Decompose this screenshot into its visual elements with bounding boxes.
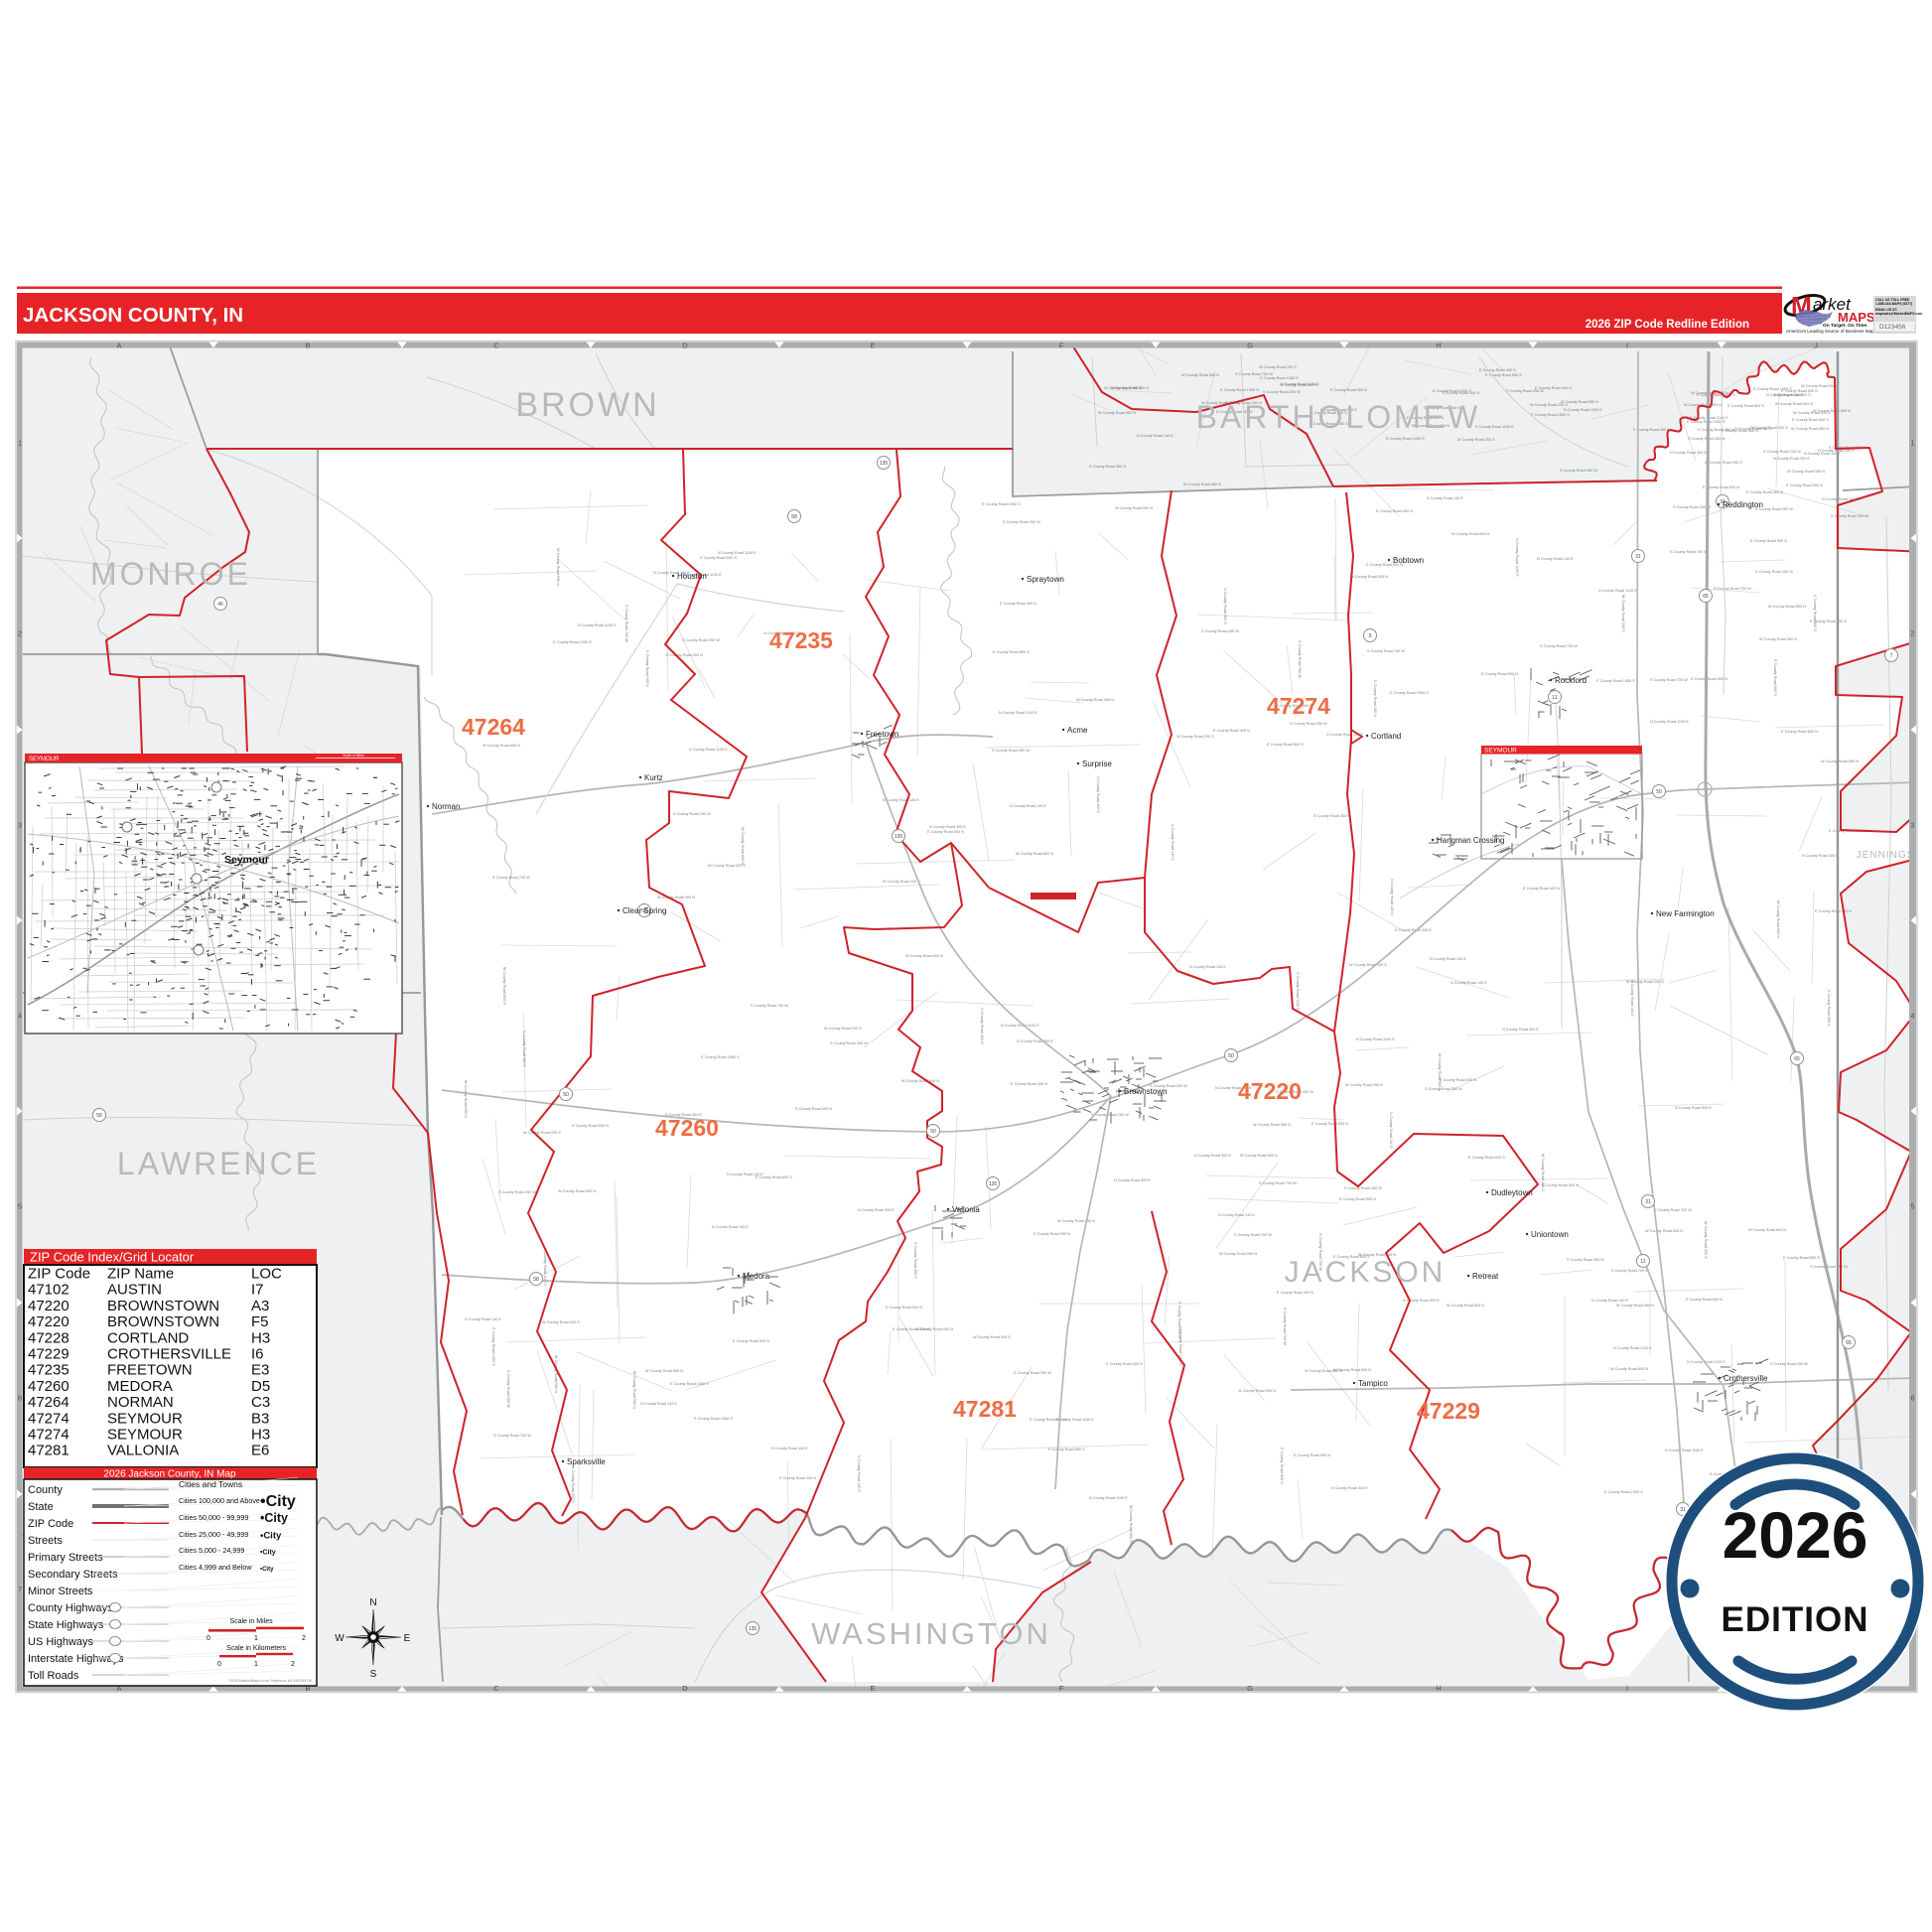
svg-text:N County Road 300 E: N County Road 300 E [1670,451,1707,455]
svg-text:47274: 47274 [28,1427,69,1444]
svg-text:2026: 2026 [1723,1498,1868,1572]
svg-text:CORTLAND: CORTLAND [107,1329,189,1346]
svg-text:2: 2 [291,1661,295,1668]
svg-text:F: F [1059,342,1064,350]
svg-text:CROTHERSVILLE: CROTHERSVILLE [107,1346,231,1363]
svg-text:W County Road 950 N: W County Road 950 N [1057,1219,1095,1223]
svg-text:Rockford: Rockford [1555,676,1587,685]
svg-text:NORMAN: NORMAN [107,1394,174,1411]
svg-text:MAPS: MAPS [1838,310,1875,325]
svg-text:W County Road 950 N: W County Road 950 N [1345,1083,1383,1087]
svg-text:E County Road 500 N: E County Road 500 N [1542,1183,1579,1187]
svg-text:50: 50 [930,1129,936,1135]
svg-text:50: 50 [1228,1053,1234,1059]
svg-text:WASHINGTON: WASHINGTON [811,1616,1051,1651]
svg-text:S County Road 250 W: S County Road 250 W [1344,1186,1382,1190]
svg-text:31: 31 [1645,1199,1651,1205]
svg-text:E County Road 800 S: E County Road 800 S [1792,418,1829,422]
svg-text:E County Road 800 S: E County Road 800 S [1773,659,1777,696]
svg-text:W County Road 200 S: W County Road 200 S [1541,1154,1545,1191]
svg-text:W County Road 950 N: W County Road 950 N [1115,506,1153,510]
svg-text:50: 50 [563,1092,569,1098]
svg-text:Primary Streets: Primary Streets [28,1552,103,1564]
svg-text:E County Road 500 N: E County Road 500 N [1686,1298,1723,1302]
svg-text:N County Road 1100 E: N County Road 1100 E [1515,538,1519,577]
svg-text:E County Road 500 N: E County Road 500 N [1691,677,1727,681]
svg-text:W County Road 200 S: W County Road 200 S [824,1027,862,1031]
svg-text:N County Road 140 E: N County Road 140 E [1430,957,1466,961]
svg-text:2: 2 [1910,629,1914,638]
svg-text:E County Road 800 S: E County Road 800 S [1048,1448,1085,1451]
svg-text:Retreat: Retreat [1472,1272,1499,1281]
svg-text:S County Road 700 W: S County Road 700 W [492,876,530,880]
svg-text:BROWNSTOWN: BROWNSTOWN [107,1313,219,1330]
svg-text:65: 65 [1846,1340,1852,1346]
svg-text:S County Road 250 W: S County Road 250 W [830,1041,868,1045]
svg-text:E County Road 1050 S: E County Road 1050 S [1386,437,1425,441]
svg-text:N County Road 1100 E: N County Road 1100 E [1296,972,1300,1011]
svg-text:W County Road 200 S: W County Road 200 S [542,1320,580,1324]
svg-text:E County Road 400 N: E County Road 400 N [1106,1362,1143,1366]
svg-text:E County Road 400 N: E County Road 400 N [779,1476,816,1480]
svg-text:58: 58 [533,1277,539,1283]
svg-text:Cities 4,999 and Below: Cities 4,999 and Below [179,1563,252,1572]
svg-text:E County Road 1050 S: E County Road 1050 S [701,1055,740,1059]
svg-text:JENNINGS: JENNINGS [1857,850,1915,861]
svg-text:E County Road 1050 S: E County Road 1050 S [1604,1490,1643,1494]
svg-text:N County Road 140 E: N County Road 140 E [1427,496,1463,500]
svg-text:N County Road 140 E: N County Road 140 E [1591,1299,1628,1303]
svg-text:Dudleytown: Dudleytown [1491,1188,1533,1197]
svg-text:N County Road 300 E: N County Road 300 E [1802,854,1839,858]
svg-text:E County Road 1050 S: E County Road 1050 S [1531,413,1570,417]
svg-text:E County Road 800 S: E County Road 800 S [1783,1256,1820,1260]
svg-text:W County Road 600 N: W County Road 600 N [1240,1154,1278,1158]
svg-text:W County Road 950 N: W County Road 950 N [657,896,695,899]
svg-text:N County Road 300 E: N County Road 300 E [1223,588,1227,624]
svg-text:SEYMOUR: SEYMOUR [29,757,60,762]
svg-text:W County Road 600 N: W County Road 600 N [558,1189,596,1193]
svg-text:N County Road 300 E: N County Road 300 E [1502,1028,1539,1032]
svg-text:Brownstown: Brownstown [1124,1087,1168,1096]
svg-text:W County Road 950 N: W County Road 950 N [1238,1389,1276,1393]
svg-text:C3: C3 [251,1394,270,1411]
svg-text:W County Road 200 S: W County Road 200 S [571,1465,575,1503]
svg-text:W County Road 950 N: W County Road 950 N [1561,400,1598,404]
svg-text:E County Road 500 N: E County Road 500 N [1815,909,1852,913]
svg-text:S County Road 250 W: S County Road 250 W [1201,629,1239,633]
svg-text:E County Road 400 N: E County Road 400 N [1373,680,1377,717]
svg-text:BARTHOLOMEW: BARTHOLOMEW [1196,399,1481,435]
svg-text:4: 4 [18,1012,22,1021]
svg-text:Sparksville: Sparksville [567,1457,606,1466]
svg-text:N County Road 1100 E: N County Road 1100 E [689,748,728,752]
svg-text:A3: A3 [251,1298,269,1314]
svg-text:E County Road 1050 S: E County Road 1050 S [1596,679,1635,683]
svg-text:N County Road 140 E: N County Road 140 E [1735,427,1772,431]
svg-text:47281: 47281 [953,1396,1017,1422]
svg-text:S County Road 250 W: S County Road 250 W [1831,514,1868,518]
svg-text:S County Road 250 W: S County Road 250 W [1810,1265,1848,1269]
svg-text:ZIP Name: ZIP Name [107,1266,174,1283]
svg-text:58: 58 [791,514,797,520]
svg-text:E County Road 500 N: E County Road 500 N [1781,730,1818,734]
svg-text:47220: 47220 [28,1298,69,1314]
svg-text:N County Road 300 E: N County Road 300 E [1114,1178,1151,1182]
svg-text:W County Road 600 N: W County Road 600 N [502,967,506,1005]
svg-text:E County Road 800 S: E County Road 800 S [993,650,1030,654]
svg-text:N County Road 1100 E: N County Road 1100 E [999,711,1037,715]
svg-text:N County Road 300 E: N County Road 300 E [1313,814,1350,818]
svg-text:W County Road 600 N: W County Road 600 N [1776,900,1780,938]
svg-text:7: 7 [1890,653,1893,659]
svg-text:N County Road 1100 E: N County Road 1100 E [1089,1496,1128,1500]
svg-text:D: D [682,342,688,350]
svg-text:E County Road 1050 S: E County Road 1050 S [670,1382,709,1386]
svg-text:W County Road 950 N: W County Road 950 N [632,1371,636,1409]
svg-text:135: 135 [989,1181,998,1187]
svg-text:W County Road 600 N: W County Road 600 N [741,827,745,865]
svg-text:E County Road 400 N: E County Road 400 N [645,650,649,687]
svg-text:47281: 47281 [28,1443,69,1459]
svg-text:C: C [493,1684,499,1693]
svg-text:S County Road 250 W: S County Road 250 W [1263,390,1301,394]
svg-text:D: D [682,1684,688,1693]
svg-text:N County Road 1100 E: N County Road 1100 E [1475,425,1514,429]
svg-text:FREETOWN: FREETOWN [107,1362,193,1379]
svg-text:N County Road 140 E: N County Road 140 E [1010,804,1046,808]
svg-text:S County Road 700 W: S County Road 700 W [751,1004,788,1008]
svg-text:N County Road 300 E: N County Road 300 E [913,1242,917,1279]
svg-text:Cities 25,000 - 49,999: Cities 25,000 - 49,999 [179,1530,248,1539]
svg-text:Reddington: Reddington [1723,500,1763,509]
svg-text:N County Road 140 E: N County Road 140 E [1171,824,1174,861]
svg-text:E County Road 800 S: E County Road 800 S [1267,743,1304,747]
svg-text:N County Road 1100 E: N County Road 1100 E [1564,408,1602,412]
svg-text:VALLONIA: VALLONIA [107,1443,179,1459]
svg-text:E County Road 500 N: E County Road 500 N [572,1124,609,1128]
svg-text:•City: •City [260,1531,282,1542]
svg-text:W County Road 600 N: W County Road 600 N [1775,402,1813,406]
svg-text:W County Road 200 S: W County Road 200 S [1176,735,1214,739]
svg-text:4: 4 [1910,1012,1914,1021]
svg-text:S County Road 250 W: S County Road 250 W [992,749,1030,753]
svg-text:Kurtz: Kurtz [644,773,663,782]
svg-text:H3: H3 [251,1427,270,1444]
svg-text:N County Road 140 E: N County Road 140 E [857,1455,861,1492]
svg-text:1: 1 [254,1661,258,1668]
svg-text:SEYMOUR: SEYMOUR [107,1427,183,1444]
svg-text:S County Road 250 W: S County Road 250 W [673,812,711,816]
svg-text:N County Road 300 E: N County Road 300 E [1096,776,1100,813]
svg-text:3: 3 [1910,821,1914,830]
svg-text:E County Road 1050 S: E County Road 1050 S [1390,691,1429,695]
svg-text:Cities 100,000 and Above: Cities 100,000 and Above [179,1496,260,1505]
svg-text:S County Road 250 W: S County Road 250 W [1698,428,1735,432]
svg-text:50: 50 [1656,789,1662,795]
svg-text:C: C [493,342,499,350]
svg-text:E County Road 400 N: E County Road 400 N [1535,386,1572,390]
svg-text:E County Road 400 N: E County Road 400 N [1000,602,1036,606]
svg-text:W County Road 600 N: W County Road 600 N [1016,852,1053,856]
svg-text:47235: 47235 [28,1362,69,1379]
svg-text:N County Road 300 E: N County Road 300 E [1773,457,1810,461]
svg-text:6: 6 [18,1394,22,1403]
svg-text:S: S [370,1669,377,1680]
svg-text:Uniontown: Uniontown [1531,1230,1569,1239]
svg-text:W County Road 950 N: W County Road 950 N [1098,411,1136,415]
svg-text:E County Road 500 N: E County Road 500 N [795,1107,832,1111]
svg-text:1: 1 [18,439,22,448]
svg-text:N County Road 300 E: N County Road 300 E [858,1208,895,1212]
svg-text:2026 MarketMaps.com Seymour, I: 2026 MarketMaps.com Seymour, IN 4SEM47M [228,1678,312,1683]
svg-text:E County Road 500 N: E County Road 500 N [886,1306,922,1310]
svg-text:F5: F5 [251,1313,269,1330]
svg-text:E: E [870,1684,875,1693]
svg-text:US Highways: US Highways [28,1636,94,1648]
svg-text:N County Road 140 E: N County Road 140 E [727,1173,763,1176]
svg-text:E County Road 500 N: E County Road 500 N [1786,483,1823,487]
svg-text:E County Road 1050 S: E County Road 1050 S [553,640,592,644]
svg-text:I7: I7 [251,1282,264,1299]
svg-text:S County Road 250 W: S County Road 250 W [1425,1087,1462,1091]
svg-text:N County Road 140 E: N County Road 140 E [1137,434,1173,438]
svg-text:MEDORA: MEDORA [107,1378,173,1395]
svg-text:5: 5 [18,1202,22,1211]
svg-text:Secondary Streets: Secondary Streets [28,1569,118,1581]
svg-text:LOC: LOC [251,1266,282,1283]
svg-text:W County Road 600 N: W County Road 600 N [1451,532,1489,536]
svg-text:I: I [1626,1684,1628,1693]
svg-text:Toll Roads: Toll Roads [28,1670,79,1682]
svg-text:47264: 47264 [28,1394,69,1411]
svg-text:7: 7 [18,1586,22,1594]
svg-text:W County Road 950 N: W County Road 950 N [1076,698,1114,702]
svg-text:W County Road 950 N: W County Road 950 N [1801,384,1839,388]
svg-text:W County Road 200 S: W County Road 200 S [1129,1505,1133,1543]
svg-text:S County Road 700 W: S County Road 700 W [1763,450,1801,454]
svg-text:W County Road 950 N: W County Road 950 N [464,1080,468,1118]
svg-text:BROWNSTOWN: BROWNSTOWN [107,1298,219,1314]
svg-text:W County Road 950 N: W County Road 950 N [1219,1252,1257,1256]
svg-text:W County Road 600 N: W County Road 600 N [1645,1229,1683,1233]
svg-text:S County Road 250 W: S County Road 250 W [1290,722,1327,726]
svg-text:N County Road 140 E: N County Road 140 E [771,1447,808,1450]
svg-text:mapsales@MarketMAPS.com: mapsales@MarketMAPS.com [1875,312,1922,316]
svg-text:N County Road 300 E: N County Road 300 E [1675,1106,1712,1110]
svg-text:135: 135 [895,834,903,840]
svg-text:County: County [28,1484,63,1496]
svg-text:2026 ZIP Code Redline Edition: 2026 ZIP Code Redline Edition [1586,319,1749,331]
svg-text:S County Road 250 W: S County Road 250 W [1673,505,1711,509]
svg-text:W County Road 200 S: W County Road 200 S [1104,386,1142,390]
svg-text:AUSTIN: AUSTIN [107,1282,162,1299]
svg-text:47274: 47274 [28,1410,69,1427]
svg-text:E County Road 500 N: E County Road 500 N [1781,389,1818,393]
svg-text:S County Road 700 W: S County Road 700 W [1611,1269,1649,1273]
svg-text:47260: 47260 [655,1115,719,1141]
svg-text:W County Road 600 N: W County Road 600 N [1768,605,1806,609]
svg-text:9: 9 [1369,633,1372,639]
svg-text:E County Road 500 N: E County Road 500 N [1827,990,1831,1027]
svg-text:Medora: Medora [743,1272,770,1281]
svg-text:S County Road 700 W: S County Road 700 W [1540,644,1578,648]
svg-text:S County Road 700 W: S County Road 700 W [1283,1308,1287,1345]
svg-text:E County Road 500 N: E County Road 500 N [927,830,964,834]
svg-text:E6: E6 [251,1443,269,1459]
svg-text:G: G [1247,342,1253,350]
svg-text:Minor Streets: Minor Streets [28,1586,93,1597]
svg-text:0: 0 [217,1661,221,1668]
svg-text:W County Road 200 S: W County Road 200 S [1621,595,1625,632]
svg-text:E County Road 800 S: E County Road 800 S [1813,595,1817,631]
svg-text:N County Road 140 E: N County Road 140 E [712,1225,749,1229]
svg-text:JACKSON COUNTY, IN: JACKSON COUNTY, IN [23,304,243,327]
svg-text:E County Road 500 N: E County Road 500 N [1440,1078,1476,1082]
svg-text:Bobtown: Bobtown [1393,556,1424,565]
svg-text:B3: B3 [251,1410,269,1427]
svg-text:0: 0 [207,1635,210,1642]
svg-text:E County Road 1050 S: E County Road 1050 S [1687,420,1725,424]
svg-text:Cortland: Cortland [1371,732,1401,741]
svg-text:Streets: Streets [28,1535,63,1547]
svg-text:N County Road 140 E: N County Road 140 E [1537,557,1574,561]
svg-text:W County Road 600 N: W County Road 600 N [905,954,943,958]
svg-text:W County Road 950 N: W County Road 950 N [1350,575,1388,579]
svg-text:W County Road 600 N: W County Road 600 N [1280,383,1317,387]
svg-text:N: N [369,1597,376,1608]
svg-text:E County Road 400 N: E County Road 400 N [1277,1291,1313,1295]
svg-text:ZIP Code: ZIP Code [28,1518,73,1530]
svg-text:E County Road 500 N: E County Road 500 N [1034,1232,1070,1236]
svg-text:W County Road 200 S: W County Road 200 S [1457,438,1495,442]
svg-text:135: 135 [880,461,889,467]
svg-text:E County Road 800 S: E County Road 800 S [1468,1156,1505,1160]
svg-text:2: 2 [302,1635,306,1642]
svg-text:E County Road 500 N: E County Road 500 N [1311,1122,1348,1126]
svg-text:Clear Spring: Clear Spring [622,906,666,915]
svg-text:E County Road 500 N: E County Road 500 N [1481,672,1518,676]
svg-text:N County Road 300 E: N County Road 300 E [1331,1486,1368,1490]
svg-text:1: 1 [254,1635,258,1642]
svg-text:JACKSON: JACKSON [1285,1256,1447,1289]
svg-text:E County Road 400 N: E County Road 400 N [1213,729,1250,733]
svg-text:47229: 47229 [1417,1398,1480,1424]
svg-text:E County Road 500 N: E County Road 500 N [700,556,737,560]
svg-text:S County Road 700 W: S County Road 700 W [1650,678,1688,682]
svg-text:I: I [1626,342,1628,350]
svg-text:S County Road 700 W: S County Road 700 W [1714,587,1751,591]
svg-text:135: 135 [749,1626,758,1632]
svg-text:E County Road 500 N: E County Road 500 N [1750,539,1787,543]
svg-text:S County Road 250 W: S County Road 250 W [1755,570,1793,574]
svg-text:47274: 47274 [1267,693,1330,719]
svg-text:E County Road 1050 S: E County Road 1050 S [1260,376,1299,380]
svg-text:N County Road 1100 E: N County Road 1100 E [1598,589,1637,593]
svg-text:S County Road 250 W: S County Road 250 W [506,1370,510,1408]
svg-text:1: 1 [1910,439,1914,448]
svg-text:W County Road 200 S: W County Road 200 S [708,864,746,868]
svg-text:G: G [1247,1684,1253,1693]
svg-text:S County Road 700 W: S County Road 700 W [1234,1233,1272,1237]
svg-text:E County Road 500 N: E County Road 500 N [733,1339,769,1343]
svg-text:E: E [404,1633,411,1644]
svg-text:F: F [1059,1684,1064,1693]
svg-text:W County Road 200 S: W County Road 200 S [523,1131,561,1135]
svg-text:W: W [335,1633,345,1644]
svg-text:Cities 50,000 - 99,999: Cities 50,000 - 99,999 [179,1513,248,1522]
svg-text:N County Road 140 E: N County Road 140 E [640,1402,677,1406]
svg-text:65: 65 [1703,594,1709,600]
svg-text:S County Road 700 W: S County Road 700 W [493,1434,531,1438]
svg-text:SEYMOUR: SEYMOUR [107,1410,183,1427]
svg-text:Norman: Norman [432,802,460,811]
svg-text:Scale in Miles: Scale in Miles [343,754,364,758]
svg-text:Hangman Crossing: Hangman Crossing [1437,836,1504,845]
svg-text:N County Road 1100 E: N County Road 1100 E [1650,720,1689,724]
svg-text:•City: •City [260,1567,274,1573]
svg-text:Seymour: Seymour [224,854,269,866]
svg-text:•City: •City [260,1549,276,1556]
svg-text:E County Road 500 N: E County Road 500 N [916,1327,953,1331]
svg-text:New Farmington: New Farmington [1656,909,1715,918]
svg-text:47220: 47220 [1238,1078,1302,1104]
svg-text:N County Road 1100 E: N County Road 1100 E [578,623,617,627]
svg-text:H: H [1436,342,1441,350]
svg-text:Spraytown: Spraytown [1027,575,1064,584]
svg-text:65: 65 [1794,1056,1800,1062]
svg-text:N County Road 140 E: N County Road 140 E [1390,879,1394,915]
svg-text:On Target. On Time.: On Target. On Time. [1823,323,1867,329]
svg-text:N County Road 300 E: N County Road 300 E [929,825,966,829]
svg-text:S County Road 250 W: S County Road 250 W [1003,520,1040,524]
svg-text:Houston: Houston [677,572,707,581]
svg-text:S County Road 700 W: S County Road 700 W [1367,649,1405,653]
svg-text:47264: 47264 [462,714,525,740]
svg-text:E County Road 400 N: E County Road 400 N [666,653,703,657]
svg-text:E County Road 400 N: E County Road 400 N [1443,391,1479,395]
svg-text:EDITION: EDITION [1722,1600,1869,1639]
svg-text:E County Road 400 N: E County Road 400 N [1479,368,1516,372]
svg-text:N County Road 1100 E: N County Road 1100 E [1665,1449,1704,1452]
svg-text:N County Road 1100 E: N County Road 1100 E [1613,1346,1652,1350]
svg-text:2026 Jackson County, IN Map: 2026 Jackson County, IN Map [103,1469,236,1480]
svg-text:N County Road 140 E: N County Road 140 E [1450,981,1487,985]
svg-text:County Highways: County Highways [28,1602,113,1614]
svg-text:W County Road 600 N: W County Road 600 N [645,1369,683,1373]
svg-text:State Highways: State Highways [28,1619,104,1631]
svg-text:S County Road 700 W: S County Road 700 W [1259,1181,1297,1185]
svg-text:W County Road 950 N: W County Road 950 N [1759,637,1797,641]
svg-text:W County Road 600 N: W County Road 600 N [901,1079,939,1083]
svg-text:47235: 47235 [769,627,833,653]
svg-text:N County Road 300 E: N County Road 300 E [980,1008,984,1044]
svg-text:B: B [305,342,310,350]
svg-text:E County Road 1050 S: E County Road 1050 S [982,502,1021,506]
svg-text:N County Road 1100 E: N County Road 1100 E [1356,1037,1395,1041]
svg-text:N County Road 140 E: N County Road 140 E [1218,1213,1255,1217]
svg-text:•City: •City [260,1493,296,1510]
svg-text:State: State [28,1501,54,1513]
svg-text:S County Road 700 W: S County Road 700 W [624,605,628,642]
svg-text:E County Road 1050 S: E County Road 1050 S [491,1327,495,1366]
svg-text:Cities and Towns: Cities and Towns [179,1479,242,1489]
svg-text:E3: E3 [251,1362,269,1379]
svg-text:MONROE: MONROE [90,556,251,592]
svg-text:W County Road 200 S: W County Road 200 S [1705,461,1742,465]
svg-text:46: 46 [217,602,223,608]
svg-text:E County Road 400 N: E County Road 400 N [1523,887,1560,891]
